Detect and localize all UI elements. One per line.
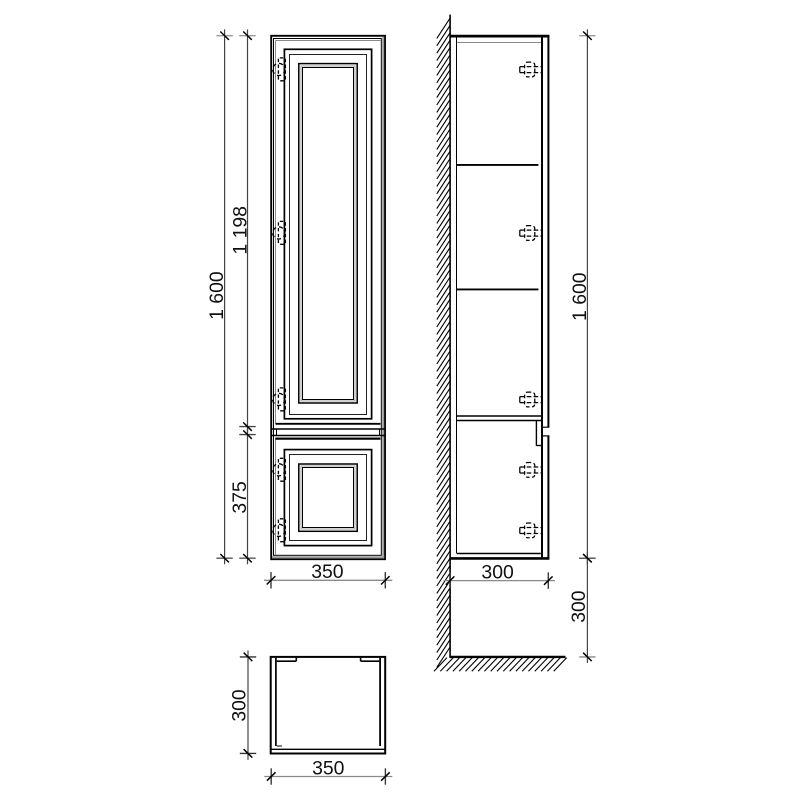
svg-text:300: 300 xyxy=(481,561,514,583)
svg-text:375: 375 xyxy=(229,481,251,513)
svg-text:1 600: 1 600 xyxy=(206,271,228,320)
svg-text:1 600: 1 600 xyxy=(569,272,591,321)
svg-text:350: 350 xyxy=(312,757,345,779)
svg-text:300: 300 xyxy=(568,590,590,623)
svg-text:350: 350 xyxy=(311,561,344,583)
svg-text:300: 300 xyxy=(229,689,251,722)
svg-text:1 198: 1 198 xyxy=(229,206,251,255)
